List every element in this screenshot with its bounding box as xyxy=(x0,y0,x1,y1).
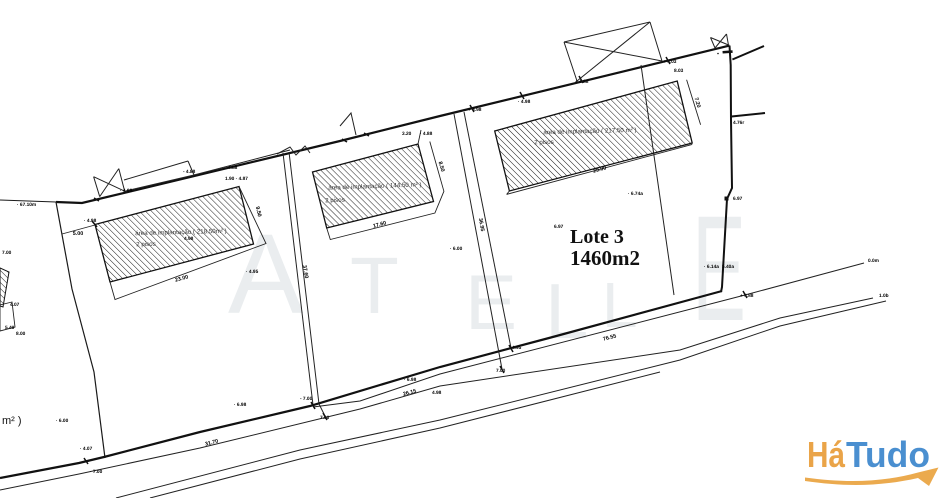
svg-text:0.0m: 0.0m xyxy=(868,258,879,264)
svg-text:31.70: 31.70 xyxy=(204,438,219,447)
svg-text:+ 4.98: + 4.98 xyxy=(468,107,482,113)
svg-text:4.98: 4.98 xyxy=(432,390,442,396)
svg-text:· 6.00: · 6.00 xyxy=(56,418,69,424)
svg-text:· 6.98: · 6.98 xyxy=(404,377,417,383)
svg-text:1.0b: 1.0b xyxy=(879,293,889,299)
svg-text:· 6.98: · 6.98 xyxy=(234,402,247,408)
svg-text:4.76r: 4.76r xyxy=(733,120,744,126)
svg-text:5.40: 5.40 xyxy=(5,325,15,331)
svg-text:· 4.07: · 4.07 xyxy=(80,446,93,452)
svg-text:· 4.95: · 4.95 xyxy=(246,269,259,275)
svg-text:E: E xyxy=(465,258,517,346)
svg-text:8.00: 8.00 xyxy=(16,331,26,337)
svg-text:4.07: 4.07 xyxy=(10,302,20,308)
svg-text:L: L xyxy=(545,267,588,355)
svg-text:6.97: 6.97 xyxy=(733,196,743,202)
svg-text:2 pisos: 2 pisos xyxy=(136,241,156,249)
svg-text:E: E xyxy=(692,184,746,352)
svg-text:m² ): m² ) xyxy=(2,415,22,427)
svg-text:36.95: 36.95 xyxy=(477,218,485,232)
svg-text:1.90 · 4.87: 1.90 · 4.87 xyxy=(225,176,248,182)
svg-text:- 4.88: - 4.88 xyxy=(183,169,196,175)
svg-text:- 7.00: - 7.00 xyxy=(300,396,313,402)
svg-text:4.98: 4.98 xyxy=(184,236,194,242)
svg-text:Lote 3: Lote 3 xyxy=(570,226,624,248)
svg-text:7.20: 7.20 xyxy=(693,97,702,109)
svg-text:· 4.88: · 4.88 xyxy=(420,131,433,137)
svg-text:7.00: 7.00 xyxy=(2,250,12,256)
svg-text:17.60: 17.60 xyxy=(372,220,387,229)
svg-text:4.88: 4.88 xyxy=(228,165,238,171)
svg-text:8.03: 8.03 xyxy=(674,68,684,74)
svg-text:· 7.00: · 7.00 xyxy=(90,469,103,475)
svg-text:5.40a: 5.40a xyxy=(722,264,734,270)
svg-text:2 pisos: 2 pisos xyxy=(325,197,345,205)
svg-text:2 pisos: 2 pisos xyxy=(534,139,554,147)
svg-text:4.95: 4.95 xyxy=(512,345,522,351)
svg-text:26.15: 26.15 xyxy=(402,388,417,397)
svg-text:· 6.00: · 6.00 xyxy=(450,246,463,252)
svg-text:+ 4.88: + 4.88 xyxy=(740,293,754,299)
svg-text:T: T xyxy=(350,241,399,330)
svg-text:+ 4.03: + 4.03 xyxy=(663,59,677,65)
svg-text:23.00: 23.00 xyxy=(174,274,189,283)
svg-text:· 6.14a: · 6.14a xyxy=(704,264,719,270)
svg-text:5.00: 5.00 xyxy=(73,231,84,237)
svg-text:· 67.10m: · 67.10m xyxy=(17,202,36,208)
svg-text:Tudo: Tudo xyxy=(846,434,930,475)
svg-text:Há: Há xyxy=(807,434,846,475)
svg-text:· 4.98: · 4.98 xyxy=(120,188,133,194)
svg-text:· 4.98: · 4.98 xyxy=(518,99,531,105)
svg-text:· 6.74a: · 6.74a xyxy=(628,191,643,197)
svg-text:3.20: 3.20 xyxy=(402,131,412,137)
svg-text:6.97: 6.97 xyxy=(554,224,564,230)
svg-text:1460m2: 1460m2 xyxy=(570,246,640,270)
